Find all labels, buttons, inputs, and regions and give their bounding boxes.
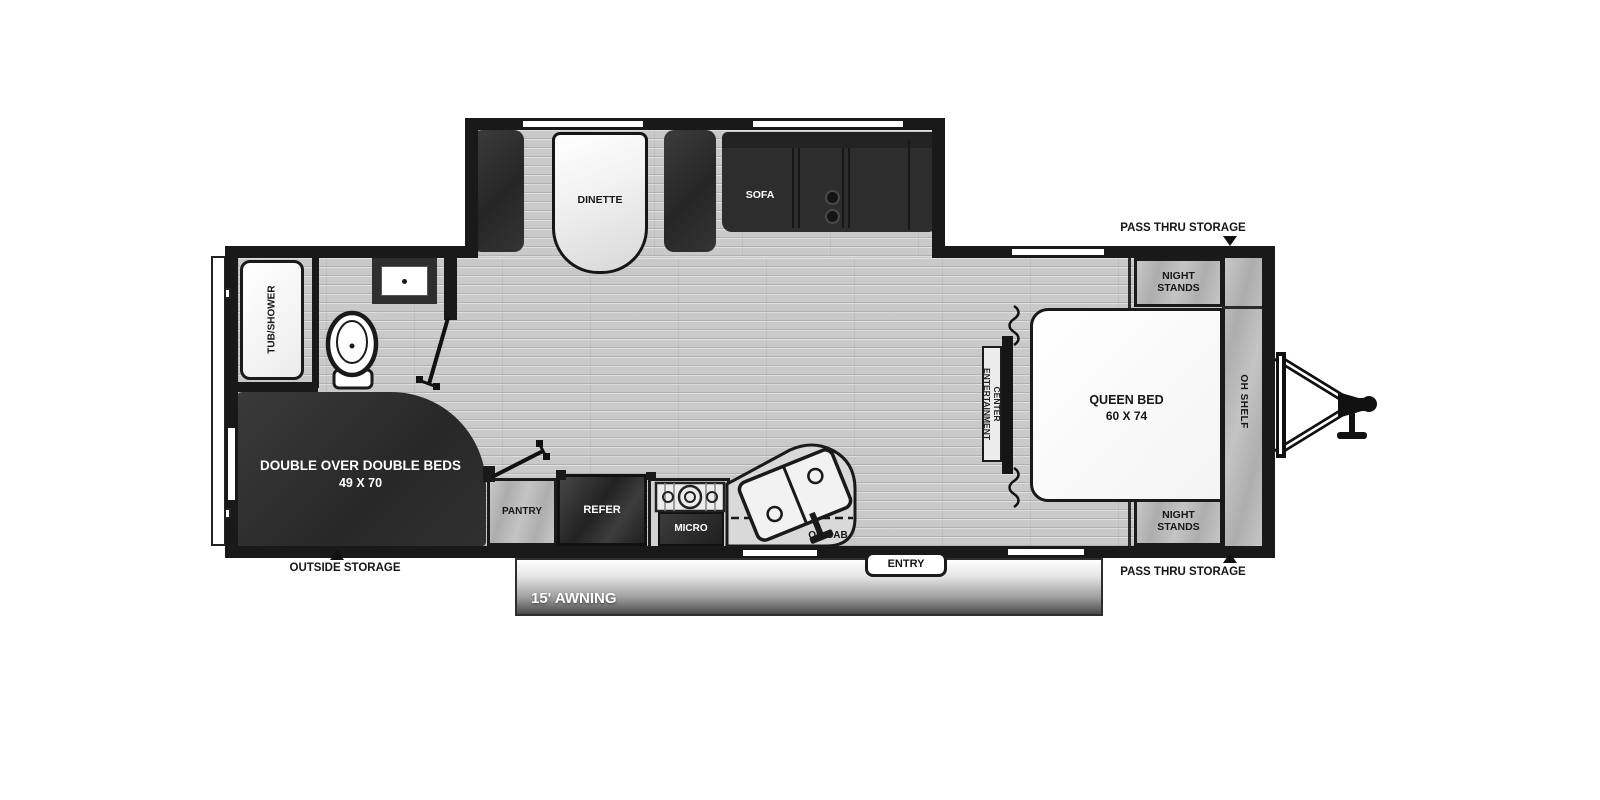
rv-floorplan: DINETTE SOFA TUB/SHOWER DOUBLE OVER DOUB… — [0, 0, 1600, 800]
bathroom-door-icon — [416, 318, 448, 390]
hitch-icon — [1276, 352, 1377, 458]
pass-thru-bottom-arrow-icon — [1223, 553, 1237, 563]
entertainment-label-wrap: CENTER ENTERTAINMENT — [962, 340, 1022, 468]
stove-icon — [656, 483, 724, 511]
sink-counter — [727, 445, 861, 562]
toilet-icon — [328, 313, 376, 388]
entry-label: ENTRY — [888, 558, 925, 570]
oh-cab-label: OH CAB — [797, 530, 859, 541]
outside-storage-label: OUTSIDE STORAGE — [245, 562, 445, 575]
entertainment-label-line2: ENTERTAINMENT — [982, 368, 992, 440]
bunk-door-icon — [492, 440, 550, 477]
outside-storage-arrow-icon — [330, 550, 344, 560]
entry-label-badge: ENTRY — [865, 552, 947, 577]
entertainment-label-line1: CENTER — [992, 368, 1002, 440]
tongue-jack-icon — [1349, 406, 1355, 436]
pass-thru-storage-top-label: PASS THRU STORAGE — [1078, 222, 1288, 235]
detail-overlay — [0, 0, 1600, 800]
hitch-ball-icon — [1361, 396, 1377, 412]
pass-thru-top-arrow-icon — [1223, 236, 1237, 246]
pass-thru-storage-bottom-label: PASS THRU STORAGE — [1078, 566, 1288, 579]
